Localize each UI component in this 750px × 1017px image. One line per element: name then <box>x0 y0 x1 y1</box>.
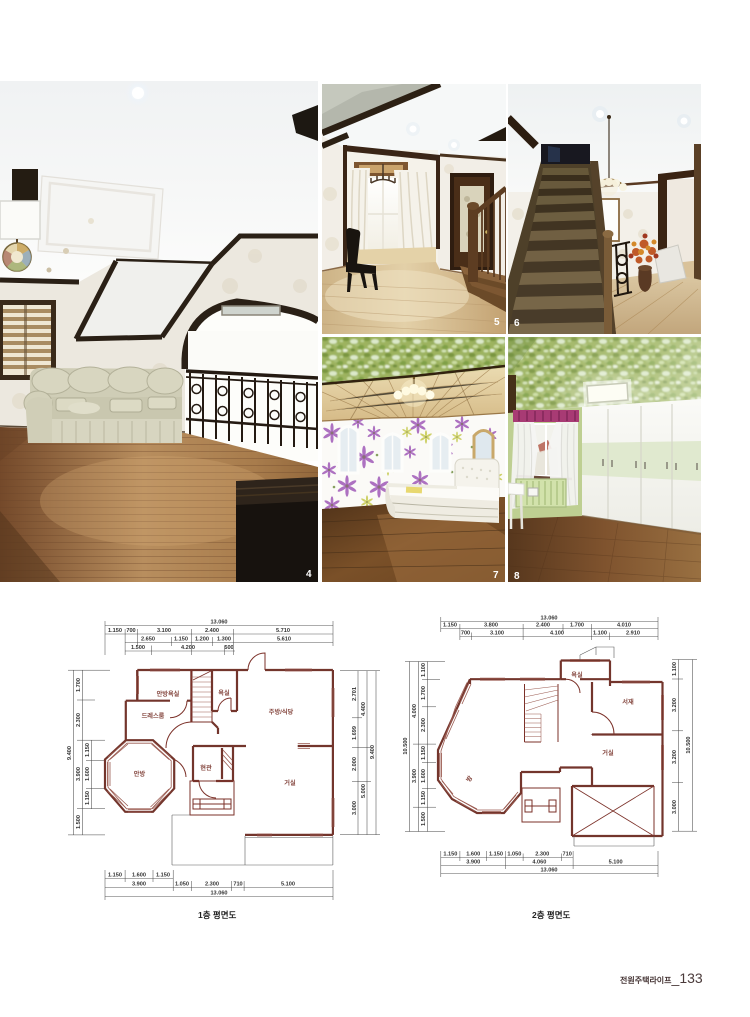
svg-text:1.700: 1.700 <box>570 623 584 629</box>
svg-text:2.701: 2.701 <box>352 687 358 701</box>
svg-text:1.600: 1.600 <box>466 852 480 858</box>
svg-text:5.100: 5.100 <box>281 882 295 888</box>
svg-text:3.900: 3.900 <box>76 767 82 781</box>
svg-text:1.500: 1.500 <box>76 815 82 829</box>
svg-text:1.150: 1.150 <box>174 637 188 643</box>
svg-text:1.699: 1.699 <box>352 726 358 740</box>
svg-text:9.400: 9.400 <box>67 746 73 760</box>
svg-text:1.150: 1.150 <box>421 791 427 805</box>
svg-text:1.600: 1.600 <box>132 873 146 879</box>
svg-text:2.300: 2.300 <box>205 882 219 888</box>
svg-text:안방욕실: 안방욕실 <box>157 690 180 698</box>
svg-text:5.000: 5.000 <box>361 784 367 798</box>
svg-text:2.400: 2.400 <box>536 623 550 629</box>
svg-text:1.150: 1.150 <box>489 852 503 858</box>
svg-text:4: 4 <box>306 569 312 580</box>
svg-text:4.010: 4.010 <box>617 623 631 629</box>
svg-text:1.700: 1.700 <box>421 686 427 700</box>
svg-text:3.200: 3.200 <box>672 750 678 764</box>
svg-text:5.710: 5.710 <box>276 628 290 634</box>
svg-text:1.200: 1.200 <box>195 637 209 643</box>
svg-text:현관: 현관 <box>200 764 212 772</box>
svg-text:5.100: 5.100 <box>609 860 623 866</box>
svg-text:4.100: 4.100 <box>550 631 564 637</box>
svg-text:700: 700 <box>126 628 135 634</box>
svg-text:3.900: 3.900 <box>466 860 480 866</box>
svg-text:710: 710 <box>563 852 572 858</box>
svg-text:1.100: 1.100 <box>421 663 427 677</box>
svg-text:4.400: 4.400 <box>361 702 367 716</box>
svg-text:안방: 안방 <box>134 770 146 778</box>
svg-text:13.060: 13.060 <box>210 891 227 897</box>
svg-text:1.050: 1.050 <box>507 852 521 858</box>
svg-text:5.610: 5.610 <box>277 637 291 643</box>
svg-text:1.150: 1.150 <box>443 623 457 629</box>
svg-text:1.100: 1.100 <box>593 631 607 637</box>
svg-text:1.050: 1.050 <box>175 882 189 888</box>
svg-text:700: 700 <box>461 631 470 637</box>
svg-text:8: 8 <box>514 571 520 582</box>
svg-text:1.150: 1.150 <box>108 873 122 879</box>
svg-text:3.900: 3.900 <box>132 882 146 888</box>
svg-text:10.500: 10.500 <box>403 737 409 754</box>
svg-text:3.900: 3.900 <box>412 769 418 783</box>
svg-text:4.200: 4.200 <box>181 645 195 651</box>
svg-text:4.000: 4.000 <box>412 704 418 718</box>
svg-text:욕실: 욕실 <box>218 689 230 697</box>
svg-text:13.060: 13.060 <box>210 620 227 626</box>
svg-text:13.060: 13.060 <box>540 616 557 622</box>
svg-text:5: 5 <box>494 317 500 328</box>
svg-text:방: 방 <box>464 774 474 784</box>
svg-text:6: 6 <box>514 318 520 329</box>
svg-text:드레스룸: 드레스룸 <box>142 712 165 720</box>
svg-text:1.100: 1.100 <box>672 662 678 676</box>
svg-text:욕실: 욕실 <box>571 671 583 679</box>
svg-text:1.500: 1.500 <box>131 645 145 651</box>
svg-text:4.060: 4.060 <box>532 860 546 866</box>
svg-text:1.500: 1.500 <box>421 812 427 826</box>
svg-text:7: 7 <box>493 570 499 581</box>
svg-text:500: 500 <box>224 645 233 651</box>
svg-text:3.200: 3.200 <box>672 698 678 712</box>
svg-text:13.060: 13.060 <box>540 868 557 874</box>
svg-text:거실: 거실 <box>602 749 614 757</box>
svg-text:1.300: 1.300 <box>217 637 231 643</box>
svg-text:710: 710 <box>233 882 242 888</box>
svg-text:3.000: 3.000 <box>672 800 678 814</box>
svg-text:2.400: 2.400 <box>205 628 219 634</box>
svg-text:1.150: 1.150 <box>85 791 91 805</box>
svg-text:서재: 서재 <box>622 698 634 706</box>
svg-text:1.150: 1.150 <box>108 628 122 634</box>
svg-text:2.910: 2.910 <box>626 631 640 637</box>
svg-text:2.000: 2.000 <box>352 757 358 771</box>
svg-text:3.100: 3.100 <box>157 628 171 634</box>
svg-text:3.800: 3.800 <box>484 623 498 629</box>
svg-text:2.300: 2.300 <box>535 852 549 858</box>
svg-text:3.000: 3.000 <box>352 801 358 815</box>
svg-text:주방/식당: 주방/식당 <box>269 708 294 716</box>
svg-text:2.300: 2.300 <box>421 718 427 732</box>
svg-text:1.700: 1.700 <box>76 678 82 692</box>
svg-text:1.150: 1.150 <box>421 746 427 760</box>
svg-text:거실: 거실 <box>284 779 296 787</box>
svg-text:1.600: 1.600 <box>85 767 91 781</box>
svg-text:3.100: 3.100 <box>490 631 504 637</box>
svg-text:1.150: 1.150 <box>85 743 91 757</box>
svg-text:2.300: 2.300 <box>76 713 82 727</box>
svg-text:10.500: 10.500 <box>686 736 692 753</box>
svg-text:1.150: 1.150 <box>156 873 170 879</box>
svg-text:2.650: 2.650 <box>141 637 155 643</box>
svg-text:1.600: 1.600 <box>421 769 427 783</box>
svg-text:1.150: 1.150 <box>443 852 457 858</box>
